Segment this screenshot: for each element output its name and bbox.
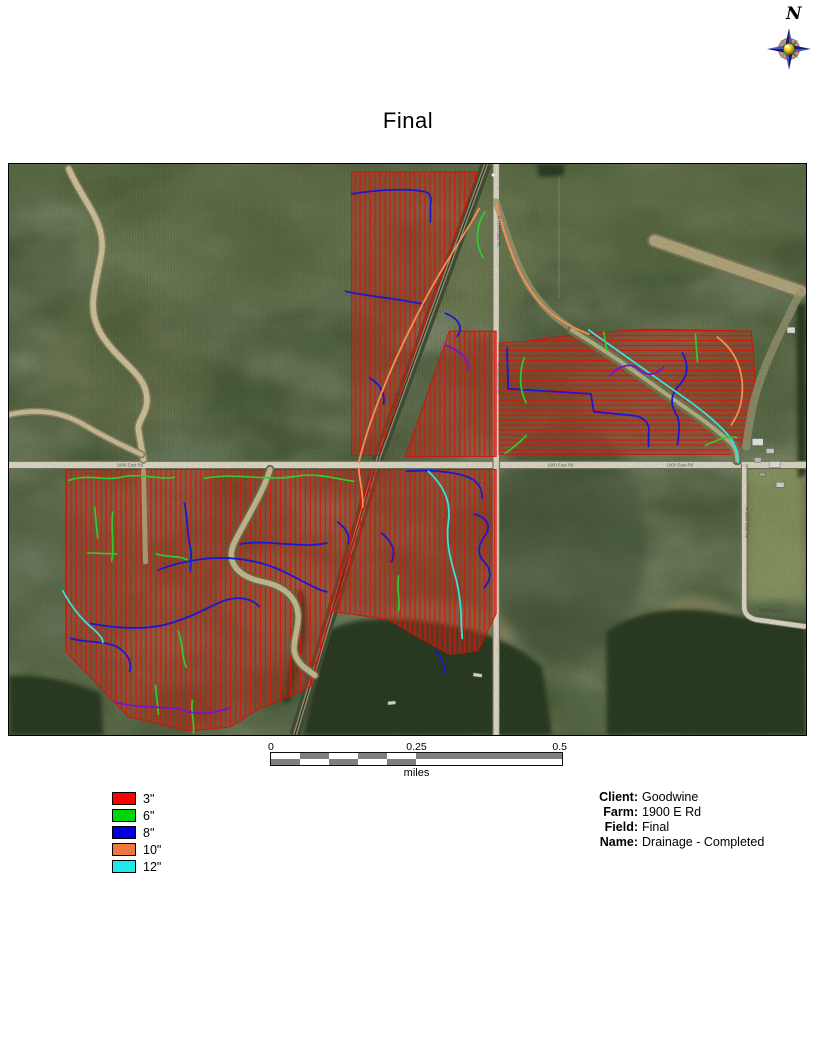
legend-item-8in: 8" [112, 824, 161, 841]
info-value: Drainage - Completed [642, 835, 764, 850]
compass-north-label: N [786, 4, 802, 24]
legend-item-12in: 12" [112, 858, 161, 875]
info-value: Goodwine [642, 790, 698, 805]
info-label: Farm: [592, 805, 638, 820]
scale-ticks: 0 0.25 0.5 [270, 741, 563, 752]
road-label: 1900 East Rd [667, 463, 694, 468]
legend-swatch-8in [112, 826, 136, 839]
info-row-field: Field: Final [592, 820, 764, 835]
road-label: N 2200 East Rd [745, 507, 750, 538]
legend-item-6in: 6" [112, 807, 161, 824]
legend-swatch-3in [112, 792, 136, 805]
road-label: 1900 East Rd [547, 463, 574, 468]
scale-tick-025: 0.25 [406, 741, 426, 753]
legend-label-3in: 3" [143, 792, 154, 806]
info-row-client: Client: Goodwine [592, 790, 764, 805]
info-label: Client: [592, 790, 638, 805]
page-title: Final [0, 108, 816, 134]
info-value: 1900 E Rd [642, 805, 701, 820]
road-label: 1900 East Rd [117, 463, 144, 468]
drainage-map: 1900 East Rd 1900 East Rd 1900 East Rd N… [8, 163, 807, 736]
info-row-farm: Farm: 1900 E Rd [592, 805, 764, 820]
scale-bar: 0 0.25 0.5 miles [270, 741, 563, 779]
scale-tick-05: 0.5 [552, 741, 567, 753]
legend-label-10in: 10" [143, 843, 161, 857]
compass-rose: N [760, 2, 816, 74]
scale-bar-graphic [270, 752, 563, 766]
scale-tick-0: 0 [268, 741, 274, 753]
legend: 3" 6" 8" 10" 12" [112, 790, 161, 875]
info-label: Name: [592, 835, 638, 850]
legend-label-12in: 12" [143, 860, 161, 874]
legend-item-10in: 10" [112, 841, 161, 858]
legend-label-6in: 6" [143, 809, 154, 823]
legend-swatch-12in [112, 860, 136, 873]
satellite-map-canvas: 1900 East Rd 1900 East Rd 1900 East Rd N… [9, 164, 806, 735]
legend-label-8in: 8" [143, 826, 154, 840]
legend-swatch-6in [112, 809, 136, 822]
road-label: N 2100 East Rd [497, 363, 502, 394]
info-label: Field: [592, 820, 638, 835]
legend-swatch-10in [112, 843, 136, 856]
field-info-block: Client: Goodwine Farm: 1900 E Rd Field: … [592, 790, 764, 850]
info-value: Final [642, 820, 669, 835]
scale-unit-label: miles [270, 767, 563, 779]
report-page: Final N [0, 0, 816, 1056]
photo-grain [9, 164, 806, 735]
road-label: N 2100 East Rd [497, 216, 502, 247]
legend-item-3in: 3" [112, 790, 161, 807]
info-row-name: Name: Drainage - Completed [592, 835, 764, 850]
